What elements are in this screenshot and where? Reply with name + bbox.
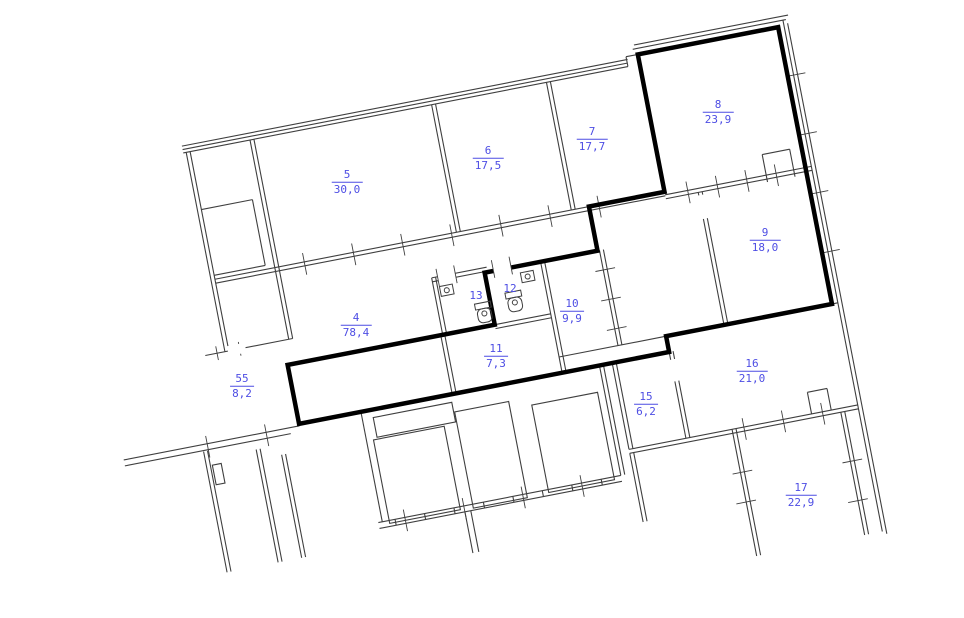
room-label-55: 558,2: [230, 372, 254, 401]
room-area: 7,3: [484, 356, 508, 371]
room-label-4: 478,4: [341, 311, 372, 340]
elevator-shafts: [357, 365, 634, 570]
room-area: 9,9: [560, 311, 584, 326]
floor-plan-drawing: [0, 0, 964, 618]
room-area: 6,2: [634, 404, 658, 419]
room-number: 15: [634, 390, 658, 404]
room-number: 9: [750, 226, 781, 240]
room-label-13: 13: [467, 289, 484, 303]
room-number: 7: [577, 125, 608, 139]
room-label-11: 117,3: [484, 342, 508, 371]
room-number: 16: [737, 357, 768, 371]
room-number: 10: [560, 297, 584, 311]
floor-plan-canvas: 530,0617,5717,7823,9918,0478,41312109,91…: [0, 0, 964, 618]
room-number: 17: [786, 481, 817, 495]
room-label-17: 1722,9: [786, 481, 817, 510]
room-label-5: 530,0: [332, 168, 363, 197]
room-number: 8: [703, 98, 734, 112]
stairs: [204, 436, 306, 572]
room-number: 5: [332, 168, 363, 182]
room-label-10: 109,9: [560, 297, 584, 326]
room-area: 17,5: [473, 158, 504, 173]
room-label-6: 617,5: [473, 144, 504, 173]
room-number: 4: [341, 311, 372, 325]
room-area: 30,0: [332, 182, 363, 197]
room-area: 78,4: [341, 325, 372, 340]
room-number: 12: [501, 282, 518, 296]
room-label-16: 1621,0: [737, 357, 768, 386]
room-area: 18,0: [750, 240, 781, 255]
room-label-12: 12: [501, 282, 518, 296]
room-area: 17,7: [577, 139, 608, 154]
room-number: 6: [473, 144, 504, 158]
room-label-8: 823,9: [703, 98, 734, 127]
room-area: 22,9: [786, 495, 817, 510]
room-label-15: 156,2: [634, 390, 658, 419]
room-area: 21,0: [737, 371, 768, 386]
room-number: 11: [484, 342, 508, 356]
room-area: 23,9: [703, 112, 734, 127]
room-area: 8,2: [230, 386, 254, 401]
room-number: 13: [467, 289, 484, 303]
room-number: 55: [230, 372, 254, 386]
room-label-9: 918,0: [750, 226, 781, 255]
room-label-7: 717,7: [577, 125, 608, 154]
dimension-ticks: [159, 73, 887, 618]
